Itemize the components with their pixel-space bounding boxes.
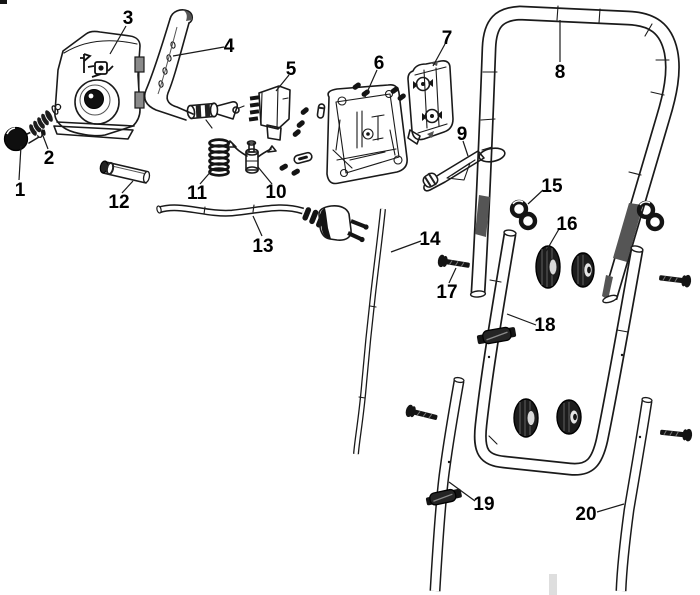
leader-line-17 bbox=[449, 268, 456, 283]
part-5-switch bbox=[249, 86, 290, 140]
part-label-3: 3 bbox=[123, 8, 134, 29]
part-15-rings bbox=[512, 201, 662, 229]
part-label-11: 11 bbox=[187, 183, 208, 204]
plug bbox=[302, 206, 369, 242]
watermark-bar bbox=[549, 574, 557, 595]
leader-line-13 bbox=[253, 216, 262, 236]
part-label-19: 19 bbox=[473, 494, 494, 515]
part-label-18: 18 bbox=[534, 315, 555, 336]
part-label-17: 17 bbox=[436, 282, 457, 303]
part-10-latch bbox=[228, 141, 276, 173]
start-key-icon bbox=[80, 54, 113, 77]
leader-line-20 bbox=[597, 504, 624, 512]
leader-line-3 bbox=[110, 26, 126, 54]
part-label-15: 15 bbox=[541, 176, 563, 197]
part-label-6: 6 bbox=[374, 53, 385, 74]
part-label-12: 12 bbox=[108, 192, 129, 213]
part-label-9: 9 bbox=[457, 124, 468, 145]
part-label-13: 13 bbox=[252, 236, 273, 257]
cable-clip bbox=[476, 326, 517, 346]
leader-line-11 bbox=[200, 169, 213, 184]
part-label-8: 8 bbox=[555, 62, 566, 83]
part-20-right-lower-tube bbox=[621, 397, 652, 591]
leader-line-14 bbox=[391, 241, 421, 252]
part-19-left-lower-tube bbox=[425, 377, 464, 591]
leader-line-1 bbox=[19, 146, 21, 180]
part-label-2: 2 bbox=[44, 148, 55, 169]
leader-line-18 bbox=[507, 314, 536, 325]
part-9-cable-guide bbox=[421, 146, 506, 190]
part-label-20: 20 bbox=[575, 504, 596, 525]
part-label-14: 14 bbox=[419, 229, 441, 250]
part-label-4: 4 bbox=[224, 36, 235, 57]
part-12-bushing bbox=[99, 160, 150, 183]
part-label-7: 7 bbox=[442, 28, 453, 49]
cable-clip bbox=[425, 487, 463, 506]
part-4-switch-lever bbox=[145, 10, 244, 128]
leader-line-6 bbox=[365, 70, 377, 97]
part-label-5: 5 bbox=[286, 59, 297, 80]
part-label-16: 16 bbox=[556, 214, 577, 235]
part-14-cable bbox=[356, 209, 383, 454]
part-7-cover-plate bbox=[408, 61, 453, 144]
part-label-10: 10 bbox=[265, 182, 286, 203]
part-3-control-housing bbox=[54, 31, 144, 139]
page-corner-mark bbox=[0, 0, 7, 4]
part-16-wheel-knobs bbox=[514, 246, 594, 437]
part-label-1: 1 bbox=[15, 180, 26, 201]
butterfly-screw bbox=[413, 78, 433, 91]
exploded-parts-diagram: 1 2 3 4 5 6 7 8 9 10 11 12 13 14 15 16 1… bbox=[0, 0, 700, 595]
leader-lines bbox=[19, 20, 624, 512]
pivot-assembly bbox=[187, 102, 244, 128]
part-6-switch-housing bbox=[279, 81, 408, 183]
